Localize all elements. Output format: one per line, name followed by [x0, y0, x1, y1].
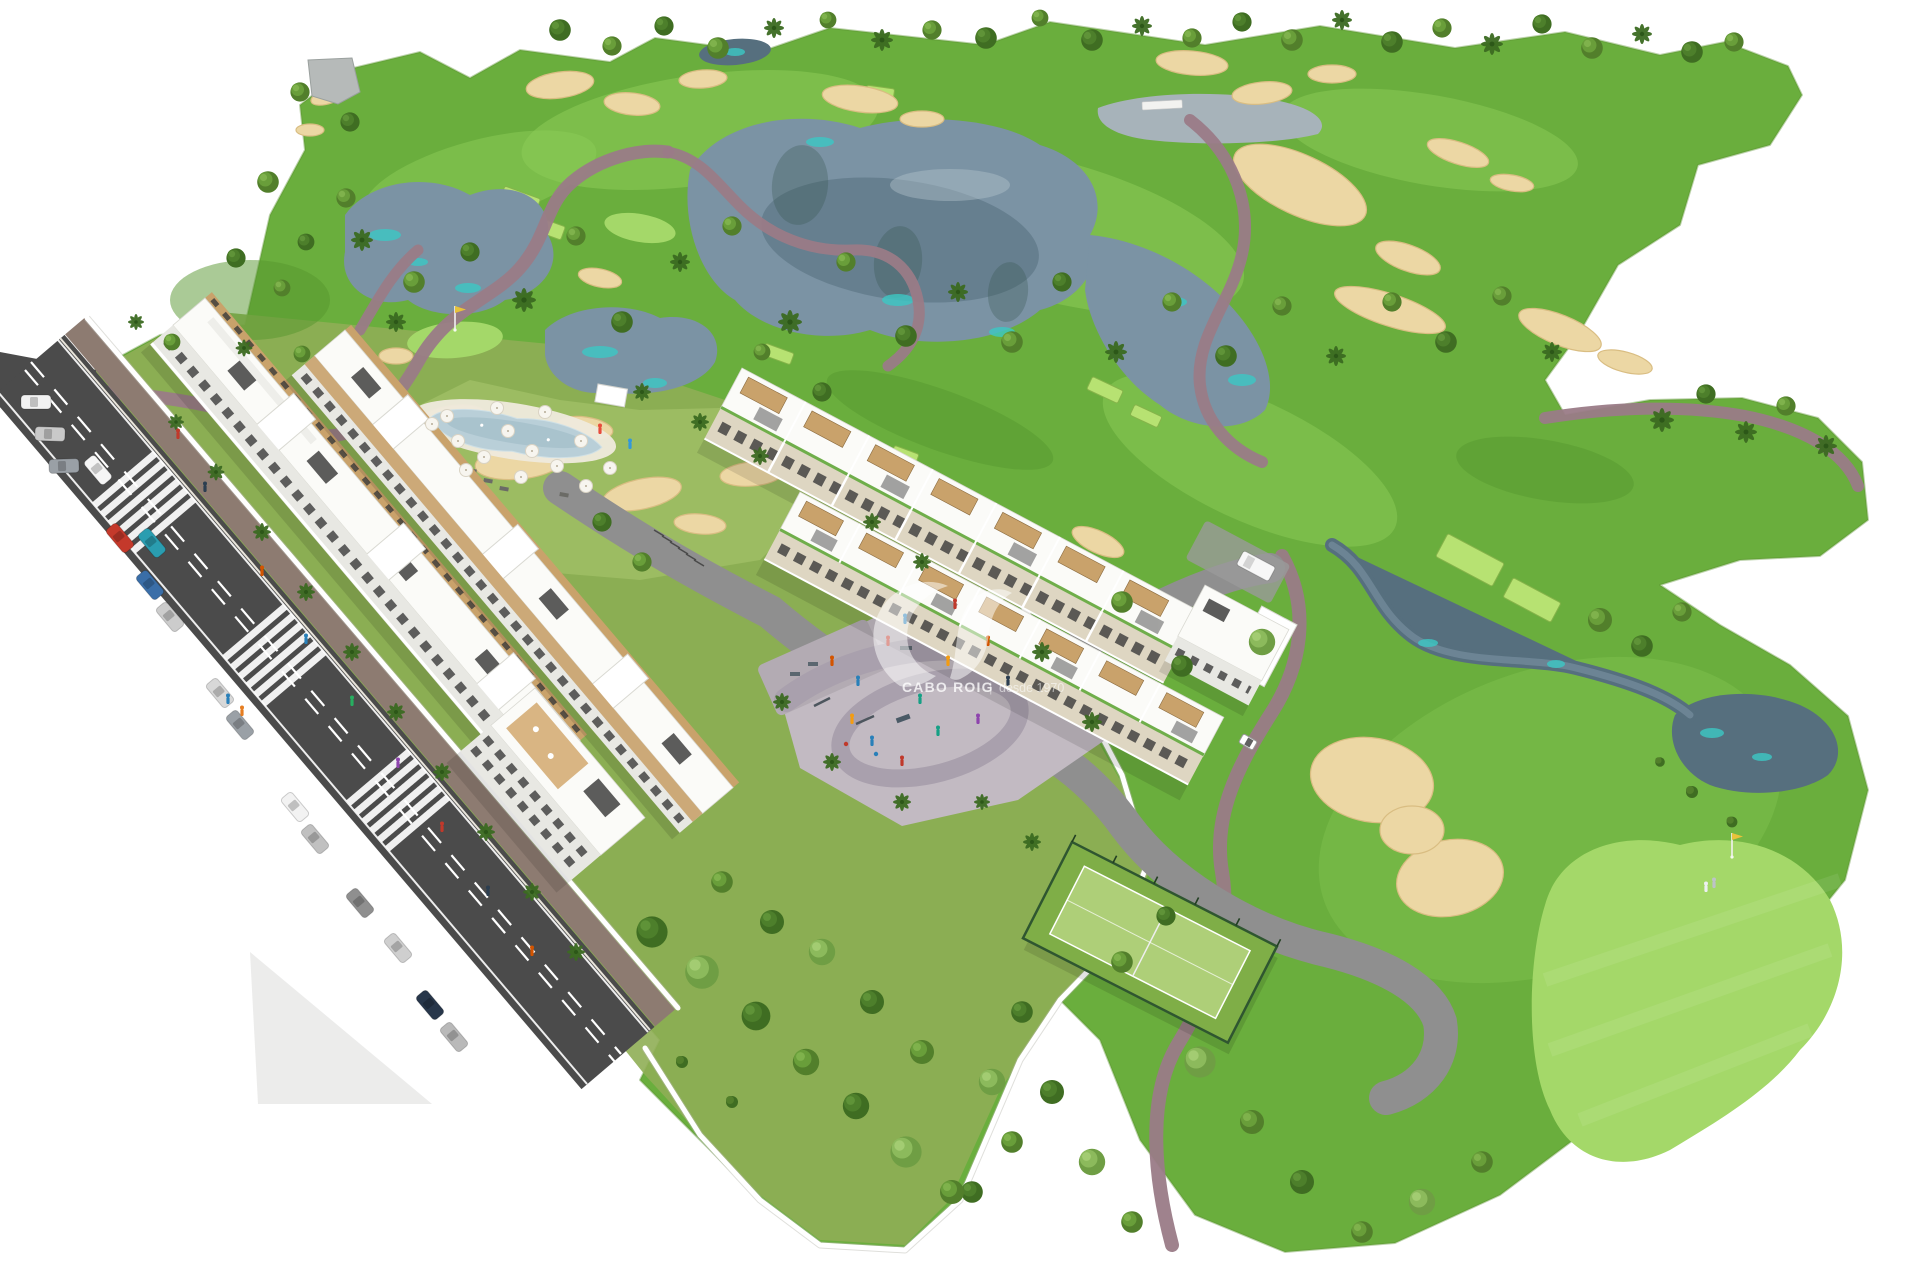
tree-light-icon — [685, 955, 719, 989]
car — [35, 426, 65, 441]
tree-light-icon — [1409, 1189, 1435, 1215]
tree-dark-icon — [1232, 12, 1251, 31]
architectural-rendering: CABO ROIG | desde 1970 — [0, 0, 1920, 1280]
tree-icon — [1471, 1151, 1493, 1173]
parasol-icon — [478, 451, 491, 464]
parasol-icon — [604, 462, 617, 475]
tree-icon — [1121, 1211, 1143, 1233]
palm-tree-icon — [1542, 342, 1562, 362]
parasol-icon — [539, 406, 552, 419]
palm-tree-icon — [168, 414, 184, 430]
tree-icon — [1581, 37, 1603, 59]
tree-dark-icon — [860, 990, 884, 1014]
palm-tree-icon — [871, 29, 893, 51]
tree-icon — [1032, 10, 1049, 27]
palm-tree-icon — [1132, 16, 1152, 36]
tree-icon — [722, 216, 741, 235]
bush-icon — [1686, 786, 1698, 798]
palm-tree-icon — [1332, 10, 1352, 30]
bush-icon — [1655, 757, 1665, 767]
parasol-icon — [491, 402, 504, 415]
person — [176, 429, 180, 440]
tree-dark-icon — [460, 242, 479, 261]
person — [203, 482, 207, 493]
palm-tree-icon — [778, 310, 802, 334]
tree-icon — [1001, 331, 1023, 353]
shallow-water-patch — [1700, 728, 1724, 738]
person — [260, 566, 264, 577]
person — [440, 822, 444, 833]
tree-icon — [1672, 602, 1691, 621]
tree-icon — [1351, 1221, 1373, 1243]
palm-tree-icon — [1481, 33, 1503, 55]
parasol-icon — [426, 418, 439, 431]
tree-icon — [274, 280, 291, 297]
tree-dark-icon — [1532, 14, 1551, 33]
tree-icon — [1111, 591, 1133, 613]
person — [1712, 878, 1716, 889]
tree-light-icon — [979, 1069, 1005, 1095]
person — [1704, 882, 1708, 893]
palm-tree-icon — [1735, 421, 1757, 443]
lake-highlight — [890, 169, 1010, 201]
tree-dark-icon — [1081, 29, 1103, 51]
palm-tree-icon — [512, 288, 536, 312]
tree-icon — [922, 20, 941, 39]
palm-tree-icon — [1326, 346, 1346, 366]
person — [976, 714, 980, 725]
palm-tree-icon — [1082, 712, 1102, 732]
person — [870, 736, 874, 747]
palm-tree-icon — [974, 794, 990, 810]
tree-light-icon — [1079, 1149, 1105, 1175]
tree-dark-icon — [1156, 906, 1175, 925]
lake-bridge — [1142, 100, 1182, 110]
watermark-divider: | — [989, 680, 992, 695]
palm-tree-icon — [1632, 24, 1652, 44]
shallow-water-patch — [1752, 753, 1772, 761]
tree-light-icon — [890, 1136, 921, 1167]
palm-tree-icon — [236, 340, 253, 357]
tree-icon — [940, 1180, 964, 1204]
tree-dark-icon — [1215, 345, 1237, 367]
person — [350, 696, 354, 707]
tree-dark-icon — [636, 916, 667, 947]
palm-tree-icon — [773, 693, 791, 711]
shallow-water-patch — [369, 229, 401, 241]
tree-dark-icon — [760, 910, 784, 934]
tree-dark-icon — [549, 19, 571, 41]
parasol-icon — [460, 464, 473, 477]
palm-tree-icon — [208, 464, 225, 481]
tree-dark-icon — [975, 27, 997, 49]
tree-icon — [632, 552, 651, 571]
person — [830, 656, 834, 667]
shallow-water-patch — [1418, 639, 1438, 647]
tree-icon — [1001, 1131, 1023, 1153]
palm-tree-icon — [823, 753, 841, 771]
palm-tree-icon — [1032, 642, 1052, 662]
tree-icon — [836, 252, 855, 271]
tree-icon — [257, 171, 279, 193]
tree-dark-icon — [895, 325, 917, 347]
palm-tree-icon — [351, 229, 373, 251]
tree-dark-icon — [1040, 1080, 1064, 1104]
tree-icon — [1432, 18, 1451, 37]
parasol-icon — [441, 410, 454, 423]
person — [486, 886, 490, 897]
parasol-icon — [452, 435, 465, 448]
palm-tree-icon — [863, 513, 881, 531]
tree-dark-icon — [1681, 41, 1703, 63]
palm-tree-icon — [691, 413, 709, 431]
tree-dark-icon — [1011, 1001, 1033, 1023]
palm-tree-icon — [670, 252, 690, 272]
palm-tree-icon — [1023, 833, 1041, 851]
palm-tree-icon — [764, 18, 784, 38]
tree-dark-icon — [961, 1181, 983, 1203]
palm-tree-icon — [1105, 341, 1127, 363]
tree-dark-icon — [1052, 272, 1071, 291]
tree-icon — [1111, 951, 1133, 973]
shallow-water-patch — [806, 137, 834, 147]
tree-icon — [754, 344, 771, 361]
tree-light-icon — [809, 939, 835, 965]
palm-tree-icon — [633, 383, 651, 401]
person — [953, 599, 957, 610]
shallow-water-patch — [1228, 374, 1256, 386]
person — [396, 758, 400, 769]
tree-dark-icon — [1381, 31, 1403, 53]
tree-dark-icon — [843, 1093, 869, 1119]
palm-tree-icon — [913, 553, 931, 571]
tree-icon — [403, 271, 425, 293]
sand-bunker — [1380, 806, 1444, 854]
tree-dark-icon — [340, 112, 359, 131]
sand-bunker — [900, 111, 944, 127]
tree-icon — [1272, 296, 1291, 315]
parasol-icon — [580, 480, 593, 493]
tree-icon — [602, 36, 621, 55]
palm-tree-icon — [1650, 408, 1674, 432]
tree-dark-icon — [742, 1002, 771, 1031]
palm-tree-icon — [433, 763, 451, 781]
sand-bunker — [1308, 65, 1356, 83]
palm-tree-icon — [253, 523, 271, 541]
watermark-tagline: desde 1970 — [999, 681, 1064, 695]
bush-icon — [726, 1096, 738, 1108]
tree-light-icon — [1184, 1046, 1215, 1077]
bush-icon — [676, 1056, 688, 1068]
watermark-brand: CABO ROIG — [902, 679, 994, 695]
palm-tree-icon — [1815, 435, 1837, 457]
person — [900, 756, 904, 767]
shallow-water-patch — [455, 283, 481, 293]
person — [226, 694, 230, 705]
palm-tree-icon — [893, 793, 911, 811]
tree-icon — [1240, 1110, 1264, 1134]
palm-tree-icon — [523, 883, 541, 901]
tree-icon — [820, 12, 837, 29]
parasol-icon — [575, 435, 588, 448]
sand-bunker — [296, 124, 324, 136]
site-plan-canvas: CABO ROIG | desde 1970 — [0, 0, 1920, 1280]
tree-icon — [1776, 396, 1795, 415]
tree-icon — [336, 188, 355, 207]
tree-dark-icon — [611, 311, 633, 333]
tree-icon — [290, 82, 309, 101]
palm-tree-icon — [297, 583, 315, 601]
tree-icon — [1382, 292, 1401, 311]
parasol-icon — [526, 445, 539, 458]
person — [240, 706, 244, 717]
tree-dark-icon — [226, 248, 245, 267]
palm-tree-icon — [386, 312, 406, 332]
car — [21, 395, 51, 409]
palm-tree-icon — [387, 703, 405, 721]
person — [850, 714, 854, 725]
palm-tree-icon — [567, 943, 585, 961]
parasol-icon — [551, 460, 564, 473]
tree-icon — [711, 871, 733, 893]
palm-tree-icon — [948, 282, 968, 302]
tree-icon — [1182, 28, 1201, 47]
sand-bunker — [379, 348, 413, 364]
car — [49, 458, 79, 473]
tree-icon — [1588, 608, 1612, 632]
shallow-water-patch — [582, 346, 618, 358]
person — [856, 676, 860, 687]
tree-dark-icon — [1171, 655, 1193, 677]
person — [936, 726, 940, 737]
palm-tree-icon — [751, 447, 769, 465]
person — [304, 634, 308, 645]
tree-icon — [793, 1049, 819, 1075]
tree-dark-icon — [1290, 1170, 1314, 1194]
tree-icon — [1492, 286, 1511, 305]
shallow-water-patch — [882, 294, 914, 306]
tree-dark-icon — [1435, 331, 1457, 353]
palm-tree-icon — [477, 823, 495, 841]
tree-dark-icon — [812, 382, 831, 401]
tree-dark-icon — [1631, 635, 1653, 657]
parasol-icon — [515, 471, 528, 484]
parasol-icon — [502, 425, 515, 438]
person — [598, 424, 602, 435]
tree-dark-icon — [592, 512, 611, 531]
tree-dark-icon — [298, 234, 315, 251]
person — [530, 946, 534, 957]
tree-dark-icon — [654, 16, 673, 35]
tree-icon — [566, 226, 585, 245]
shallow-water-patch — [1547, 660, 1565, 668]
palm-tree-icon — [343, 643, 361, 661]
tree-icon — [1281, 29, 1303, 51]
tree-icon — [707, 37, 729, 59]
tree-icon — [1162, 292, 1181, 311]
bush-icon — [1727, 817, 1738, 828]
tree-icon — [294, 346, 311, 363]
tree-icon — [1724, 32, 1743, 51]
person — [628, 439, 632, 450]
tree-dark-icon — [1696, 384, 1715, 403]
person — [918, 694, 922, 705]
person — [946, 656, 950, 667]
tree-icon — [910, 1040, 934, 1064]
palm-tree-icon — [128, 314, 144, 330]
tree-icon — [164, 334, 181, 351]
tree-light-icon — [1249, 629, 1275, 655]
